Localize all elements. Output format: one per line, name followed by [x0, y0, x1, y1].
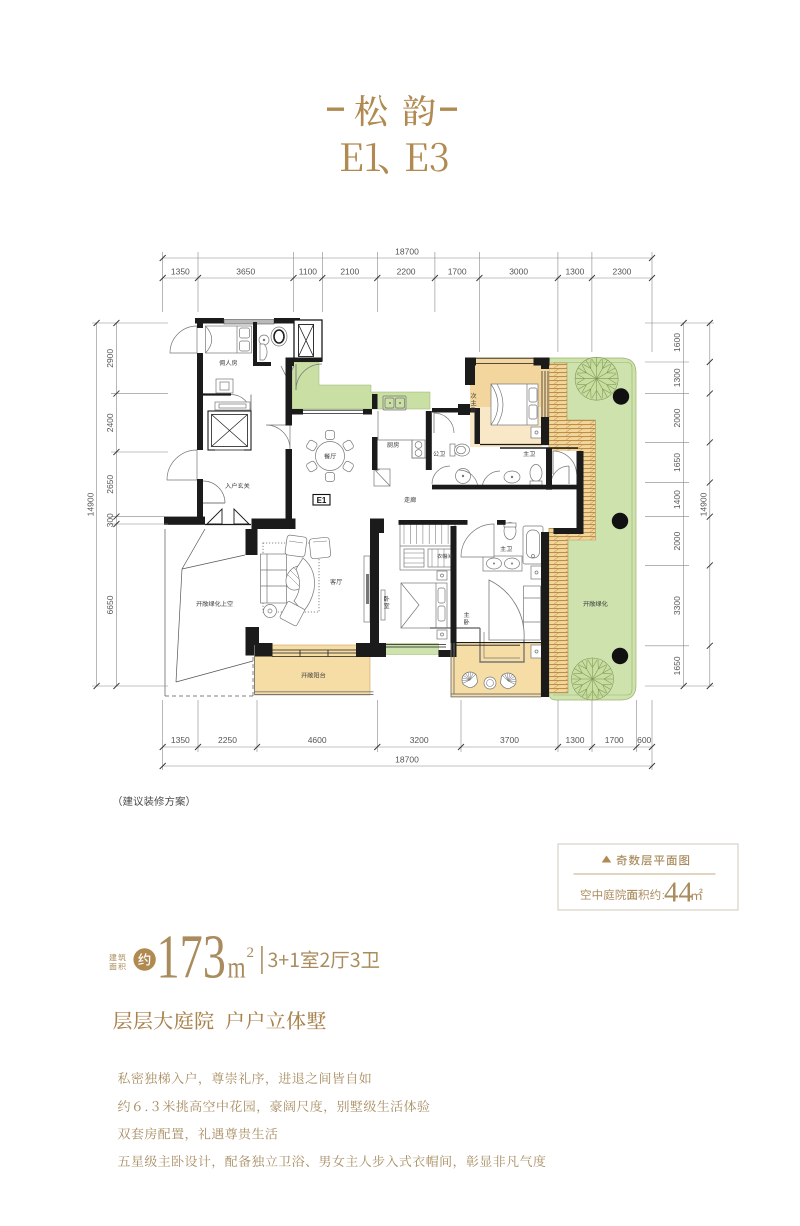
- svg-text:18700: 18700: [395, 755, 419, 765]
- svg-text:m: m: [228, 950, 246, 984]
- svg-text:18700: 18700: [395, 247, 419, 257]
- svg-text:1300: 1300: [565, 267, 584, 277]
- svg-text:1700: 1700: [605, 735, 624, 745]
- svg-text:1350: 1350: [171, 267, 190, 277]
- svg-text:3200: 3200: [410, 735, 429, 745]
- svg-text:3300: 3300: [672, 596, 682, 615]
- svg-text:14900: 14900: [86, 492, 96, 516]
- svg-text:1700: 1700: [448, 267, 467, 277]
- svg-text:2250: 2250: [218, 735, 237, 745]
- svg-text:1300: 1300: [566, 735, 585, 745]
- svg-text:2900: 2900: [105, 349, 115, 368]
- svg-text:1600: 1600: [672, 333, 682, 352]
- svg-text:1300: 1300: [672, 368, 682, 387]
- svg-text:1650: 1650: [672, 453, 682, 472]
- svg-text:173: 173: [157, 922, 226, 991]
- svg-text:2300: 2300: [612, 267, 631, 277]
- svg-text:600: 600: [637, 735, 651, 745]
- svg-text:6650: 6650: [105, 595, 115, 614]
- svg-text:1650: 1650: [672, 656, 682, 675]
- svg-text:44: 44: [664, 877, 694, 909]
- svg-text:4600: 4600: [308, 735, 327, 745]
- svg-text:E1: E1: [317, 496, 327, 505]
- svg-text:3650: 3650: [236, 267, 255, 277]
- svg-text:300: 300: [105, 513, 115, 527]
- svg-text:14900: 14900: [699, 492, 709, 516]
- svg-text:2100: 2100: [340, 267, 359, 277]
- svg-text:2000: 2000: [672, 531, 682, 550]
- svg-text:1400: 1400: [672, 490, 682, 509]
- svg-text:3700: 3700: [500, 735, 519, 745]
- svg-text:1100: 1100: [299, 267, 318, 277]
- svg-text:2000: 2000: [672, 408, 682, 427]
- svg-text:2400: 2400: [105, 413, 115, 432]
- svg-text:2200: 2200: [397, 267, 416, 277]
- svg-text:2650: 2650: [105, 475, 115, 494]
- svg-text:2: 2: [247, 945, 255, 961]
- svg-text:1350: 1350: [171, 735, 190, 745]
- svg-text:3000: 3000: [509, 267, 528, 277]
